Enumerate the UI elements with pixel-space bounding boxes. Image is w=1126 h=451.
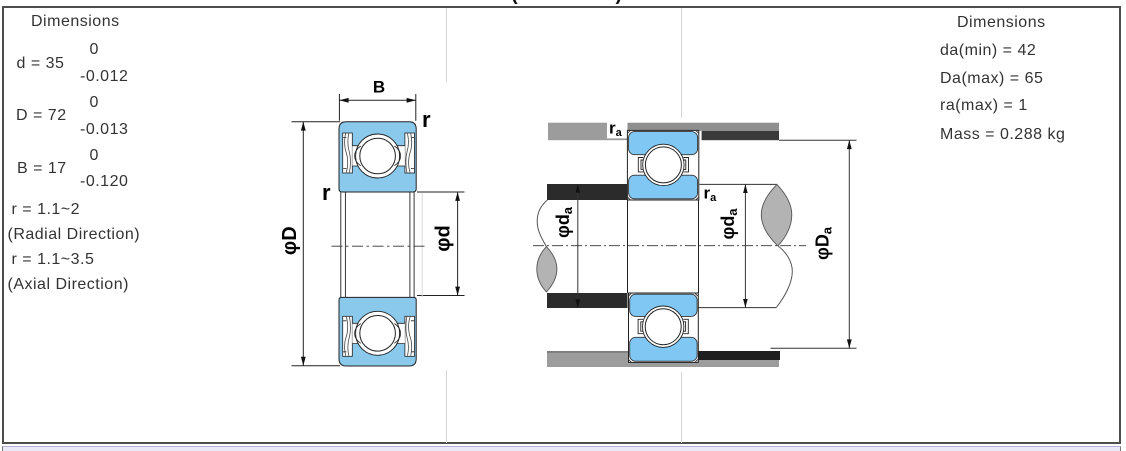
svg-text:φD: φD [279, 226, 301, 255]
svg-text:φd: φd [433, 225, 455, 252]
svg-text:r: r [422, 107, 431, 132]
svg-text:r: r [322, 180, 331, 205]
svg-text:B: B [373, 78, 385, 97]
